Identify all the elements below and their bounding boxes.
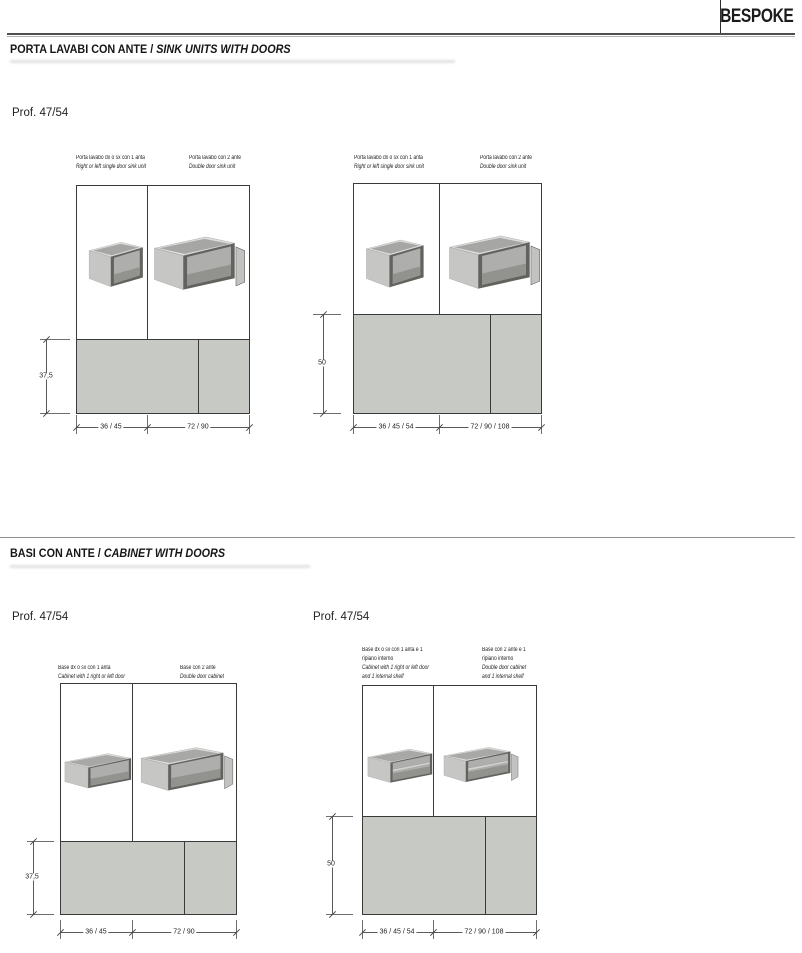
- door-divider: [490, 314, 491, 413]
- render-cabinet-single-door-shelf: [366, 733, 434, 795]
- title-ghost-artifact: [10, 60, 455, 63]
- label-italian: Porta lavabo dx o sx con 1 anta: [354, 154, 424, 163]
- elevation-panel: [77, 339, 249, 413]
- extension-line: [313, 413, 341, 414]
- label-english: Double door sink unit: [189, 163, 241, 172]
- height-dimension-value: 37,5: [23, 874, 41, 881]
- label-italian: Porta lavabo dx o sx con 1 anta: [76, 154, 146, 163]
- label-italian: ripiano interno: [362, 655, 429, 664]
- column-label-cabinet-double-shelf: Base con 2 ante e 1 ripiano interno Doub…: [482, 646, 526, 682]
- label-italian: ripiano interno: [482, 655, 526, 664]
- label-italian: Base dx o sx con 1 anta e 1: [362, 646, 429, 655]
- label-english: and 1 internal shelf: [362, 673, 429, 682]
- label-english: Right or left single door sink unit: [354, 163, 424, 172]
- column-label-sink-double: Porta lavabo con 2 ante Double door sink…: [189, 154, 241, 172]
- catalog-page: BESPOKE PORTA LAVABI CON ANTE / SINK UNI…: [0, 0, 802, 953]
- render-sink-double-door: [447, 219, 541, 303]
- elevation-panel: [363, 816, 536, 914]
- section1-title-en: SINK UNITS WITH DOORS: [156, 42, 290, 56]
- title-ghost-artifact: [10, 565, 310, 568]
- section2-profile-label-right: Prof. 47/54: [313, 611, 369, 623]
- width-dimension-value: 72 / 90: [171, 929, 196, 936]
- height-dimension-value: 37,5: [37, 373, 55, 380]
- door-divider: [198, 339, 199, 413]
- label-english: Cabinet with 1 right or left door: [58, 673, 125, 682]
- section2-profile-label-left: Prof. 47/54: [12, 611, 68, 623]
- section-divider-rule: [0, 537, 795, 538]
- extension-line: [313, 314, 341, 315]
- width-dimension-value: 36 / 45 / 54: [376, 424, 415, 431]
- label-italian: Base con 2 ante e 1: [482, 646, 526, 655]
- section1-profile-label: Prof. 47/54: [12, 107, 68, 119]
- width-dimension-value: 72 / 90 / 108: [469, 424, 512, 431]
- height-dimension-value: 50: [316, 360, 328, 367]
- column-label-cabinet-single: Base dx o sx con 1 anta Cabinet with 1 r…: [58, 664, 125, 682]
- render-cabinet-double-door: [140, 733, 234, 801]
- section2-title-it: BASI CON ANTE: [10, 546, 95, 560]
- label-italian: Base dx o sx con 1 anta: [58, 664, 125, 673]
- label-english: Right or left single door sink unit: [76, 163, 146, 172]
- width-dimension-value: 72 / 90 / 108: [463, 929, 506, 936]
- column-label-sink-single: Porta lavabo dx o sx con 1 anta Right or…: [354, 154, 424, 172]
- label-english: Cabinet with 1 right or left door: [362, 664, 429, 673]
- brand-label: BESPOKE: [720, 6, 793, 28]
- label-italian: Base con 2 ante: [180, 664, 224, 673]
- column-label-sink-single: Porta lavabo dx o sx con 1 anta Right or…: [76, 154, 146, 172]
- render-cabinet-double-door-shelf: [443, 728, 519, 798]
- width-dimension-value: 36 / 45 / 54: [377, 929, 416, 936]
- bespoke-tab: BESPOKE: [720, 0, 798, 33]
- section1-title: PORTA LAVABI CON ANTE / SINK UNITS WITH …: [10, 42, 291, 56]
- label-italian: Porta lavabo con 2 ante: [189, 154, 241, 163]
- render-sink-single-door: [362, 222, 428, 302]
- label-italian: Porta lavabo con 2 ante: [480, 154, 532, 163]
- width-dimension-value: 36 / 45: [98, 424, 123, 431]
- section2-title-en: CABINET WITH DOORS: [104, 546, 225, 560]
- column-label-cabinet-single-shelf: Base dx o sx con 1 anta e 1 ripiano inte…: [362, 646, 429, 682]
- door-divider: [485, 816, 486, 914]
- section2-title: BASI CON ANTE / CABINET WITH DOORS: [10, 546, 225, 560]
- column-label-cabinet-double: Base con 2 ante Double door cabinet: [180, 664, 224, 682]
- door-divider: [184, 841, 185, 914]
- render-cabinet-single-door: [63, 737, 133, 801]
- column-label-sink-double: Porta lavabo con 2 ante Double door sink…: [480, 154, 532, 172]
- width-dimension-value: 72 / 90: [185, 424, 210, 431]
- label-english: and 1 internal shelf: [482, 673, 526, 682]
- header-rule: [7, 33, 795, 35]
- render-sink-double-door: [152, 221, 246, 303]
- header-rule-shadow: [7, 36, 795, 37]
- elevation-panel: [354, 314, 541, 413]
- label-english: Double door cabinet: [180, 673, 224, 682]
- section1-title-it: PORTA LAVABI CON ANTE: [10, 42, 147, 56]
- render-sink-single-door: [85, 224, 147, 302]
- width-dimension-value: 36 / 45: [83, 929, 108, 936]
- label-english: Double door sink unit: [480, 163, 532, 172]
- height-dimension-value: 50: [325, 861, 337, 868]
- elevation-panel: [61, 841, 236, 914]
- section2-title-separator: /: [95, 546, 104, 560]
- label-english: Double door cabinet: [482, 664, 526, 673]
